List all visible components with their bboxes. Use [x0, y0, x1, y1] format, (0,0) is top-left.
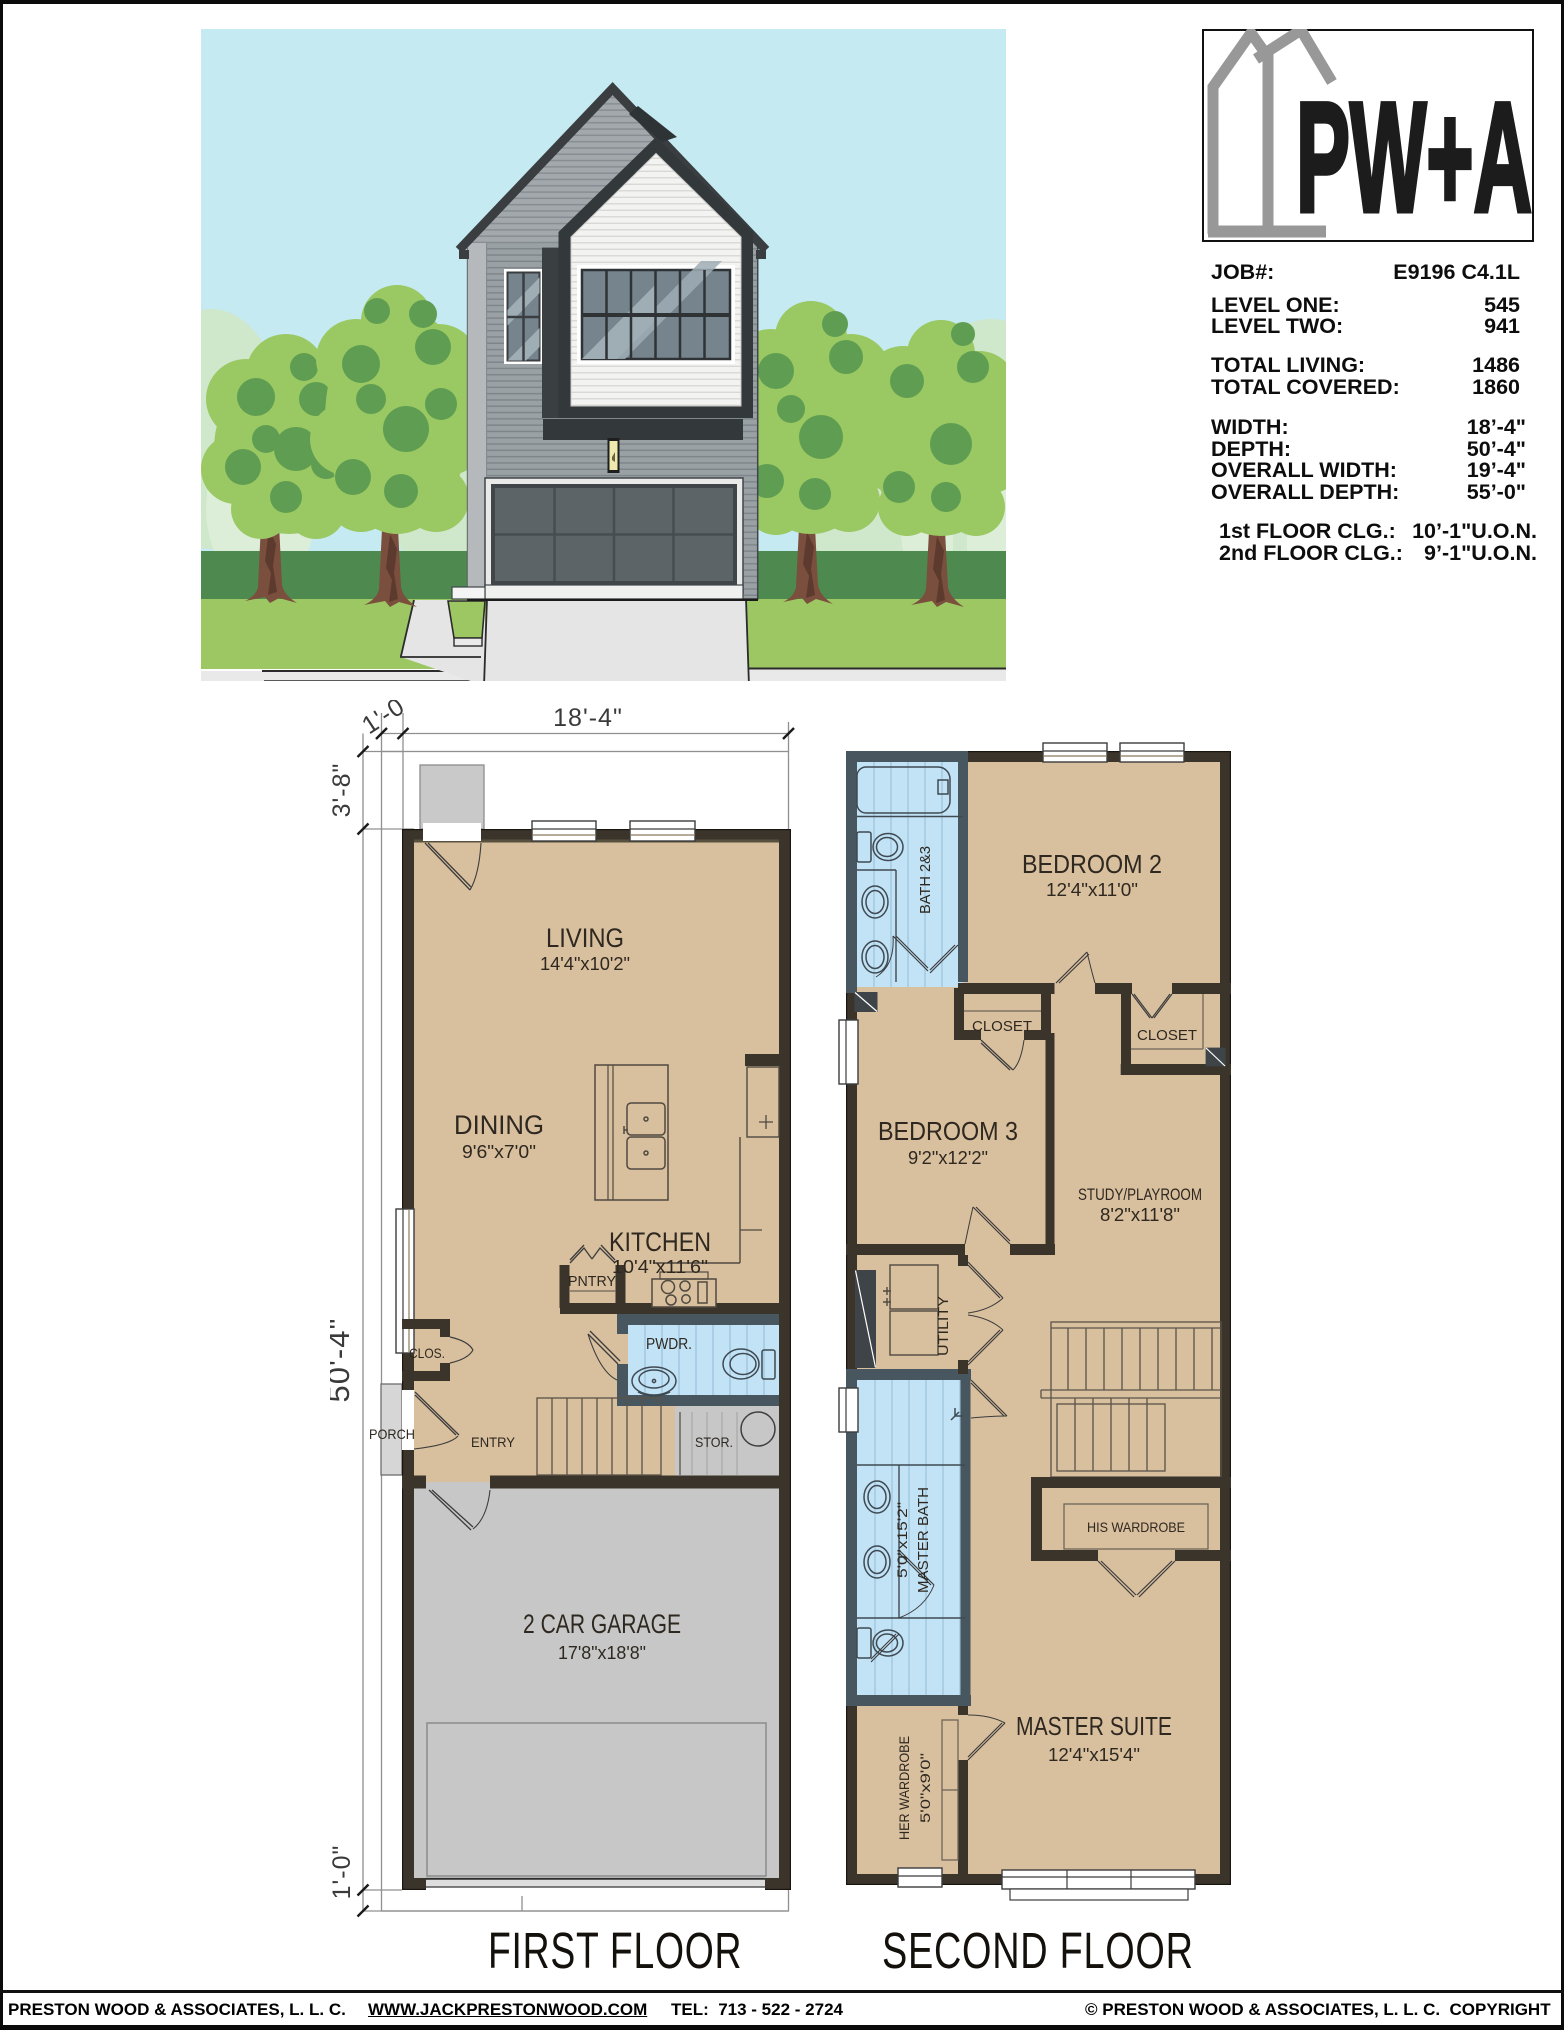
svg-text:MASTER SUITE: MASTER SUITE — [1016, 1711, 1172, 1741]
svg-text:CLOSET: CLOSET — [972, 1018, 1032, 1035]
svg-text:UTILITY: UTILITY — [935, 1296, 952, 1356]
svg-text:5'0"x15'2": 5'0"x15'2" — [895, 1502, 910, 1578]
svg-text:MASTER BATH: MASTER BATH — [915, 1487, 932, 1593]
svg-text:KITCHEN: KITCHEN — [609, 1227, 711, 1257]
svg-text:BEDROOM 3: BEDROOM 3 — [878, 1116, 1018, 1146]
svg-text:CLOSET: CLOSET — [1137, 1027, 1197, 1044]
svg-text:STOR.: STOR. — [695, 1434, 733, 1450]
svg-text:LIVING: LIVING — [546, 923, 624, 953]
svg-text:PWDR.: PWDR. — [646, 1336, 692, 1353]
svg-text:1'-0": 1'-0" — [330, 1845, 356, 1900]
svg-text:HIS WARDROBE: HIS WARDROBE — [1087, 1519, 1185, 1535]
svg-text:8'2"x11'8": 8'2"x11'8" — [1100, 1205, 1180, 1225]
svg-text:10'4"x11'6": 10'4"x11'6" — [612, 1257, 708, 1277]
svg-text:STUDY/PLAYROOM: STUDY/PLAYROOM — [1078, 1185, 1202, 1204]
svg-text:PW+A: PW+A — [1296, 71, 1532, 242]
svg-text:2 CAR GARAGE: 2 CAR GARAGE — [523, 1609, 681, 1639]
svg-text:BATH 2&3: BATH 2&3 — [917, 846, 934, 914]
svg-text:18'-4": 18'-4" — [553, 704, 623, 732]
svg-text:12'4"x11'0": 12'4"x11'0" — [1046, 880, 1138, 900]
svg-text:14'4"x10'2": 14'4"x10'2" — [540, 954, 630, 974]
svg-text:HER WARDROBE: HER WARDROBE — [897, 1736, 912, 1840]
svg-text:17'8"x18'8": 17'8"x18'8" — [558, 1643, 646, 1663]
svg-text:CLOS.: CLOS. — [409, 1345, 445, 1361]
svg-text:PORCH: PORCH — [369, 1426, 415, 1442]
svg-text:PNTRY: PNTRY — [568, 1273, 616, 1290]
svg-text:DINING: DINING — [454, 1110, 544, 1140]
svg-text:3'-8": 3'-8" — [330, 763, 356, 818]
svg-text:9'6"x7'0": 9'6"x7'0" — [462, 1142, 536, 1162]
svg-text:9'2"x12'2": 9'2"x12'2" — [908, 1148, 988, 1168]
svg-text:50'-4": 50'-4" — [330, 1318, 356, 1403]
svg-text:BEDROOM 2: BEDROOM 2 — [1022, 849, 1162, 879]
svg-text:ENTRY: ENTRY — [471, 1434, 516, 1450]
svg-text:5'0"x9'0": 5'0"x9'0" — [918, 1753, 933, 1823]
svg-text:12'4"x15'4": 12'4"x15'4" — [1048, 1745, 1140, 1765]
